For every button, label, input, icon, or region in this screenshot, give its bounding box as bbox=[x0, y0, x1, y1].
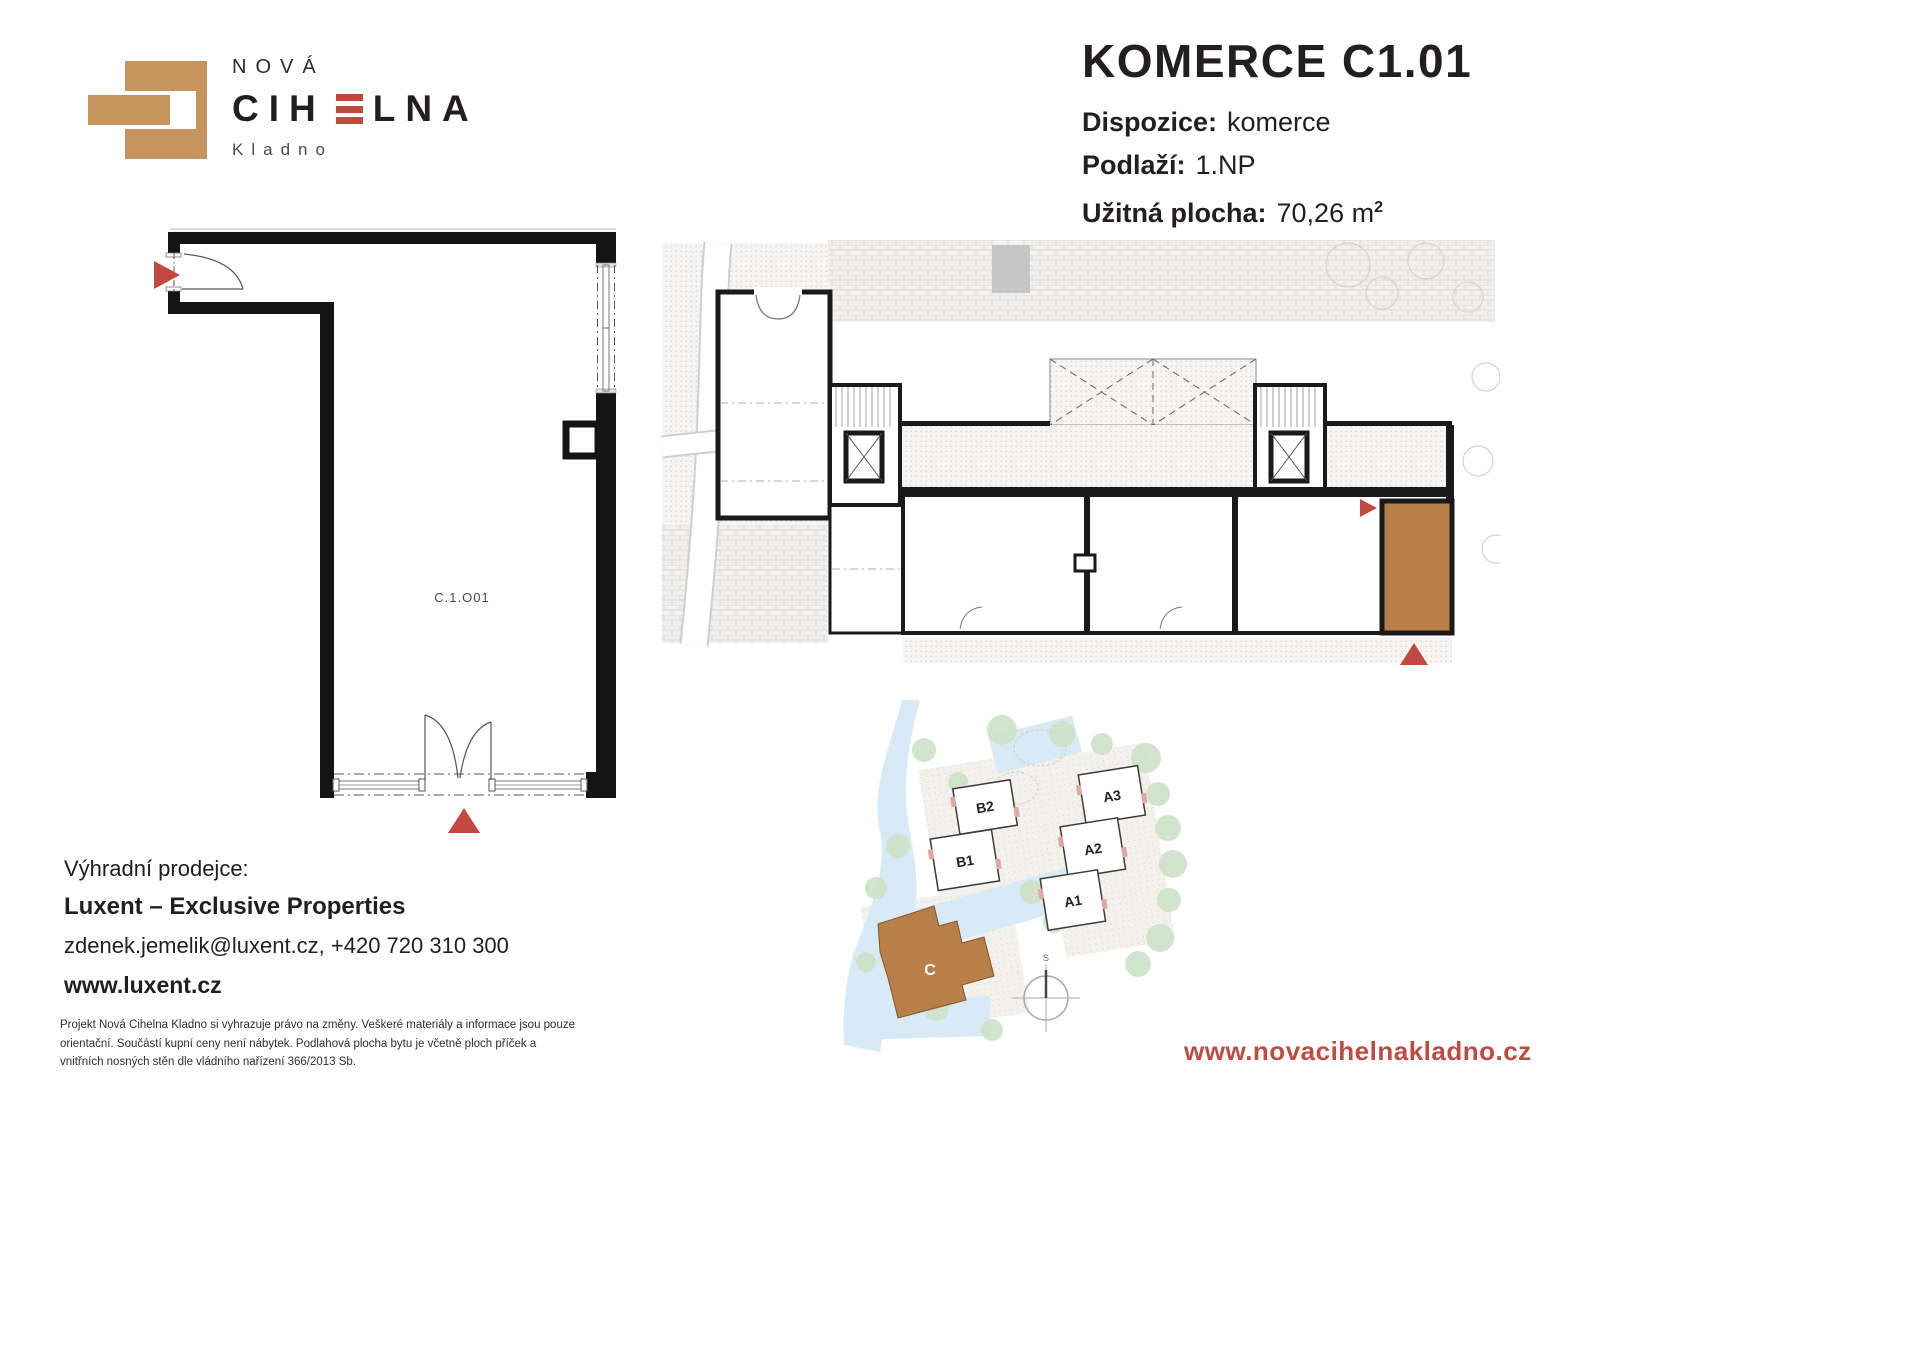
page-title: KOMERCE C1.01 bbox=[1082, 38, 1802, 84]
site-label-a1: A1 bbox=[1063, 892, 1083, 911]
contact-company: Luxent – Exclusive Properties bbox=[64, 893, 509, 921]
site-label-b2: B2 bbox=[975, 798, 995, 817]
window-right bbox=[596, 263, 616, 393]
logo: NOVÁ CIHLNA Kladno bbox=[80, 48, 520, 168]
building-unit-left bbox=[718, 287, 830, 518]
contact-email-phone[interactable]: zdenek.jemelik@luxent.cz, +420 720 310 3… bbox=[64, 933, 509, 959]
wall-top bbox=[170, 232, 616, 244]
footer-website-link[interactable]: www.novacihelnakladno.cz bbox=[1184, 1036, 1532, 1067]
site-label-a3: A3 bbox=[1102, 787, 1122, 806]
wall-left bbox=[320, 302, 334, 798]
entrance-door bbox=[182, 254, 243, 289]
title-row-dispozice: Dispozice:komerce bbox=[1082, 105, 1802, 139]
highlighted-unit bbox=[1382, 501, 1452, 633]
double-entry-door bbox=[425, 715, 491, 780]
logo-name-post: LNA bbox=[373, 88, 479, 130]
contact-heading: Výhradní prodejce: bbox=[64, 856, 509, 882]
building-floor-plan bbox=[660, 235, 1500, 665]
logo-bricks-icon bbox=[80, 48, 220, 168]
site-label-b1: B1 bbox=[955, 852, 975, 871]
site-plan: B2 B1 A3 A2 A1 C bbox=[840, 700, 1190, 1060]
title-row-podlazi: Podlaží:1.NP bbox=[1082, 148, 1802, 182]
contact-website-link[interactable]: www.luxent.cz bbox=[64, 972, 509, 999]
logo-brick-e-icon bbox=[336, 94, 363, 124]
logo-city: Kladno bbox=[232, 140, 479, 160]
logo-name: CIHLNA bbox=[232, 88, 479, 130]
unit-floor-plan: C.1.O01 bbox=[140, 225, 640, 845]
entrance-arrow-bottom bbox=[448, 808, 480, 833]
site-label-c: C bbox=[924, 962, 936, 979]
compass-label: S bbox=[1043, 953, 1049, 963]
canopy-skylight bbox=[1050, 359, 1256, 425]
disclaimer-text: Projekt Nová Cihelna Kladno si vyhrazuje… bbox=[60, 1016, 576, 1072]
logo-text: NOVÁ CIHLNA Kladno bbox=[232, 56, 479, 160]
shaft-block bbox=[992, 245, 1030, 293]
stair-core-1 bbox=[830, 385, 900, 505]
logo-line-top: NOVÁ bbox=[232, 56, 479, 79]
site-label-a2: A2 bbox=[1083, 840, 1103, 859]
square-meter-sup: 2 bbox=[1374, 199, 1383, 216]
wall-vestibule-bottom bbox=[168, 302, 334, 314]
wall-pillar bbox=[566, 424, 598, 456]
title-block: KOMERCE C1.01 Dispozice:komerce Podlaží:… bbox=[1082, 38, 1802, 239]
title-row-plocha: Užitná plocha:70,26 m2 bbox=[1082, 191, 1802, 230]
logo-name-pre: CIH bbox=[232, 88, 326, 130]
unit-area-label: C.1.O01 bbox=[434, 590, 489, 605]
entrance-arrow-left bbox=[154, 261, 180, 289]
contact-block: Výhradní prodejce: Luxent – Exclusive Pr… bbox=[64, 856, 509, 999]
